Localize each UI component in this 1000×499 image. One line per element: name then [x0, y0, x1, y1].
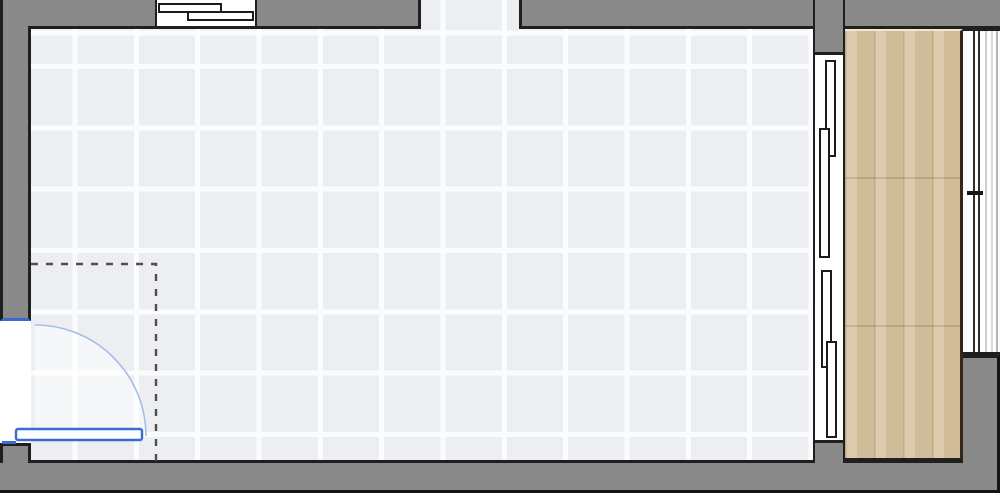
door-leaf[interactable]: [16, 429, 142, 440]
door-swing-area: [35, 325, 146, 436]
floor-plan-canvas: [0, 0, 1000, 499]
door-overlay: [0, 0, 1000, 499]
door-threshold-accent: [2, 441, 16, 444]
